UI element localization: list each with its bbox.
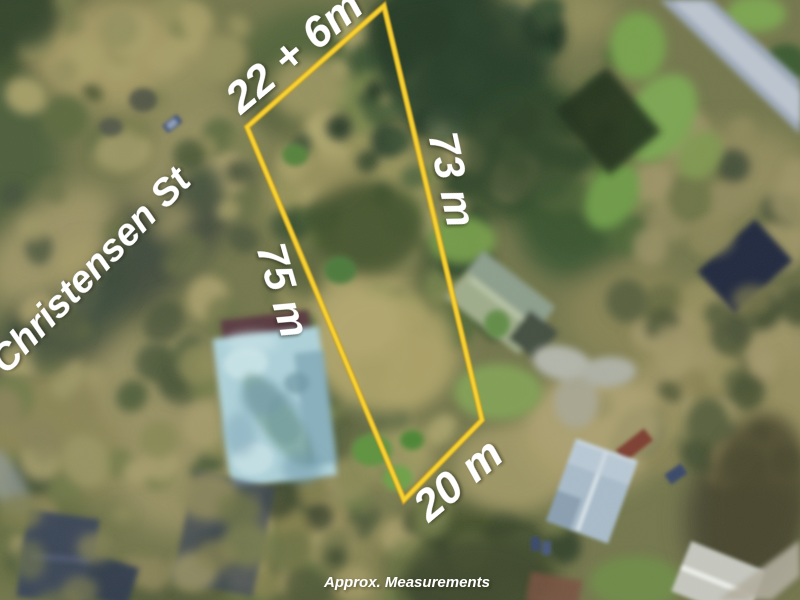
svg-text:Approx. Measurements: Approx. Measurements [323,574,490,591]
